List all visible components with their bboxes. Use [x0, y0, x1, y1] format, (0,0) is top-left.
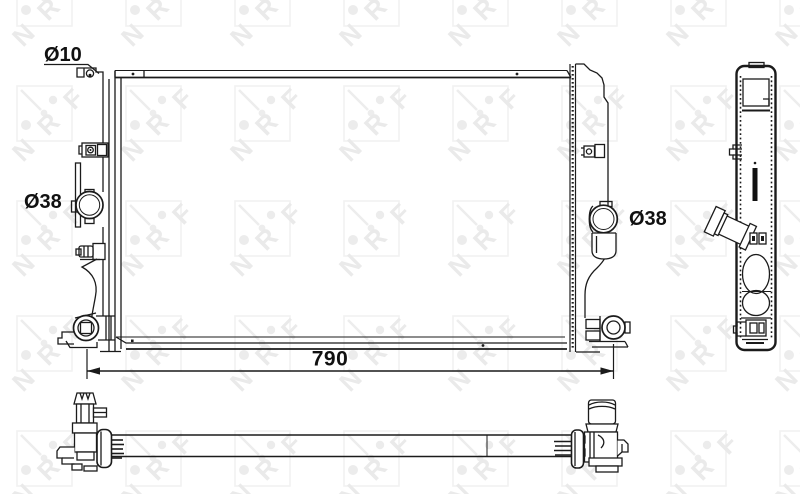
front-right-clip — [581, 145, 605, 158]
front-left-lower-fitting — [76, 244, 105, 260]
front-left-clip — [79, 143, 108, 157]
label-right-port-diameter: Ø38 — [629, 208, 667, 230]
label-left-port-diameter: Ø38 — [24, 191, 62, 213]
label-overall-width: 790 — [312, 348, 349, 371]
label-hole-diameter: Ø10 — [44, 44, 82, 66]
nrf-watermark-background — [0, 0, 800, 494]
drawing-canvas: N R F — [0, 0, 800, 494]
radiator-technical-drawing: N R F — [0, 0, 800, 494]
